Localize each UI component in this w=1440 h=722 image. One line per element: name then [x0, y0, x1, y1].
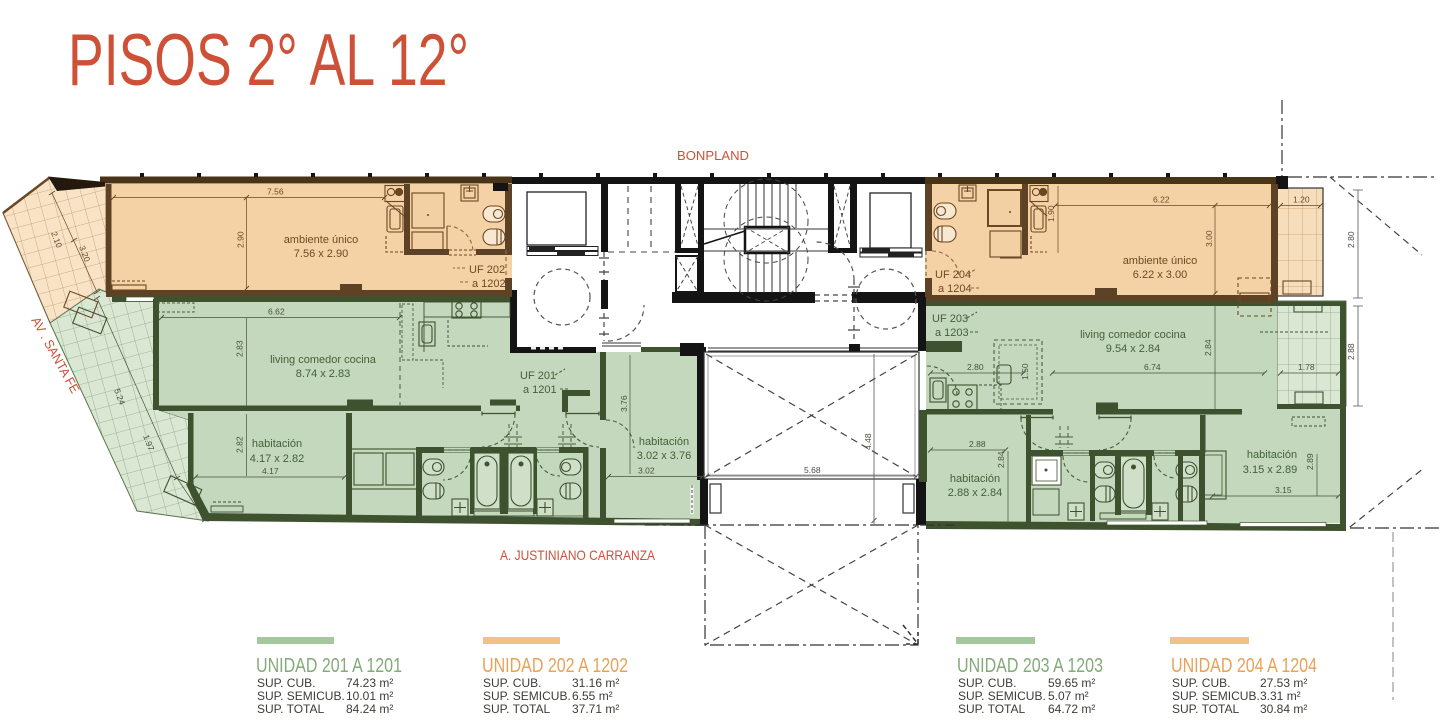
svg-text:2.84: 2.84 — [1203, 339, 1213, 356]
svg-text:4.17: 4.17 — [262, 466, 279, 476]
svg-text:a 1202: a 1202 — [472, 278, 506, 290]
svg-text:2.88: 2.88 — [1346, 343, 1356, 360]
svg-text:ambiente único: ambiente único — [284, 234, 359, 246]
svg-text:SUP. SEMICUB.: SUP. SEMICUB. — [958, 689, 1046, 703]
svg-text:UNIDAD 202 A 1202: UNIDAD 202 A 1202 — [482, 654, 628, 677]
svg-text:living comedor cocina: living comedor cocina — [270, 354, 377, 366]
svg-text:1.78: 1.78 — [1298, 362, 1315, 372]
svg-text:habitación: habitación — [252, 438, 302, 450]
svg-text:3.00: 3.00 — [1204, 230, 1214, 247]
svg-text:ambiente único: ambiente único — [1123, 255, 1198, 267]
svg-text:SUP. TOTAL: SUP. TOTAL — [257, 702, 324, 716]
svg-text:SUP. CUB.: SUP. CUB. — [257, 676, 315, 690]
svg-text:2.80: 2.80 — [1346, 231, 1356, 248]
svg-text:10.01 m²: 10.01 m² — [346, 689, 393, 703]
svg-text:59.65 m²: 59.65 m² — [1048, 676, 1095, 690]
svg-text:7.56: 7.56 — [267, 187, 284, 197]
svg-text:1.90: 1.90 — [1046, 205, 1056, 222]
svg-text:6.62: 6.62 — [268, 307, 285, 317]
svg-text:30.84 m²: 30.84 m² — [1260, 702, 1307, 716]
svg-text:84.24 m²: 84.24 m² — [346, 702, 393, 716]
svg-text:9.54 x 2.84: 9.54 x 2.84 — [1106, 343, 1160, 355]
svg-text:3.15: 3.15 — [1275, 485, 1292, 495]
svg-text:1.50: 1.50 — [1020, 363, 1030, 380]
svg-text:2.84: 2.84 — [996, 451, 1006, 468]
svg-text:3.02: 3.02 — [638, 466, 655, 476]
svg-text:SUP. TOTAL: SUP. TOTAL — [958, 702, 1025, 716]
svg-text:SUP. TOTAL: SUP. TOTAL — [1172, 702, 1239, 716]
svg-text:UF 204: UF 204 — [935, 269, 971, 281]
svg-text:6.74: 6.74 — [1144, 362, 1161, 372]
svg-text:3.15 x 2.89: 3.15 x 2.89 — [1243, 464, 1297, 476]
svg-text:PISOS 2° AL 12°: PISOS 2° AL 12° — [68, 20, 469, 101]
svg-text:1.20: 1.20 — [1293, 195, 1310, 205]
svg-text:2.89: 2.89 — [1305, 453, 1315, 470]
svg-text:UF 202: UF 202 — [469, 264, 505, 276]
svg-text:4.17 x 2.82: 4.17 x 2.82 — [250, 453, 304, 465]
svg-text:27.53 m²: 27.53 m² — [1260, 676, 1307, 690]
svg-text:5.68: 5.68 — [804, 465, 821, 475]
svg-text:UNIDAD 201 A 1201: UNIDAD 201 A 1201 — [256, 654, 402, 677]
svg-text:SUP. CUB.: SUP. CUB. — [958, 676, 1016, 690]
svg-text:8.74 x 2.83: 8.74 x 2.83 — [296, 368, 350, 380]
svg-text:UF 203: UF 203 — [932, 313, 968, 325]
svg-text:2.90: 2.90 — [236, 231, 246, 248]
svg-text:BONPLAND: BONPLAND — [677, 148, 749, 163]
svg-text:UNIDAD 203 A 1203: UNIDAD 203 A 1203 — [957, 654, 1103, 677]
svg-text:7.56 x 2.90: 7.56 x 2.90 — [294, 248, 348, 260]
svg-text:31.16 m²: 31.16 m² — [572, 676, 619, 690]
svg-text:3.31 m²: 3.31 m² — [1260, 689, 1301, 703]
svg-text:3.02 x 3.76: 3.02 x 3.76 — [637, 450, 691, 462]
svg-text:37.71 m²: 37.71 m² — [572, 702, 619, 716]
svg-text:3.76: 3.76 — [619, 395, 629, 412]
svg-text:5.07 m²: 5.07 m² — [1048, 689, 1089, 703]
svg-text:2.83: 2.83 — [235, 340, 245, 357]
svg-text:2.88 x 2.84: 2.88 x 2.84 — [948, 487, 1002, 499]
svg-text:SUP. CUB.: SUP. CUB. — [1172, 676, 1230, 690]
svg-text:SUP. SEMICUB.: SUP. SEMICUB. — [483, 689, 571, 703]
svg-text:living comedor cocina: living comedor cocina — [1080, 329, 1187, 341]
svg-text:a 1201: a 1201 — [523, 384, 557, 396]
svg-text:a 1204: a 1204 — [938, 283, 972, 295]
svg-text:6.55 m²: 6.55 m² — [572, 689, 613, 703]
svg-text:2.80: 2.80 — [967, 362, 984, 372]
svg-text:4.48: 4.48 — [863, 433, 873, 450]
svg-text:a 1203: a 1203 — [935, 327, 969, 339]
svg-text:UF 201: UF 201 — [520, 370, 556, 382]
svg-text:habitación: habitación — [639, 436, 689, 448]
svg-text:74.23 m²: 74.23 m² — [346, 676, 393, 690]
svg-text:SUP. CUB.: SUP. CUB. — [483, 676, 541, 690]
svg-text:SUP. SEMICUB.: SUP. SEMICUB. — [1172, 689, 1260, 703]
svg-text:2.88: 2.88 — [969, 439, 986, 449]
svg-text:6.22: 6.22 — [1153, 195, 1170, 205]
svg-text:A. JUSTINIANO CARRANZA: A. JUSTINIANO CARRANZA — [500, 547, 656, 563]
svg-text:SUP. TOTAL: SUP. TOTAL — [483, 702, 550, 716]
svg-text:6.22 x 3.00: 6.22 x 3.00 — [1133, 269, 1187, 281]
svg-text:SUP. SEMICUB.: SUP. SEMICUB. — [257, 689, 345, 703]
svg-text:habitación: habitación — [950, 473, 1000, 485]
svg-text:habitación: habitación — [1247, 449, 1297, 461]
svg-text:64.72 m²: 64.72 m² — [1048, 702, 1095, 716]
svg-text:UNIDAD 204 A 1204: UNIDAD 204 A 1204 — [1171, 654, 1317, 677]
svg-text:2.82: 2.82 — [235, 436, 245, 453]
